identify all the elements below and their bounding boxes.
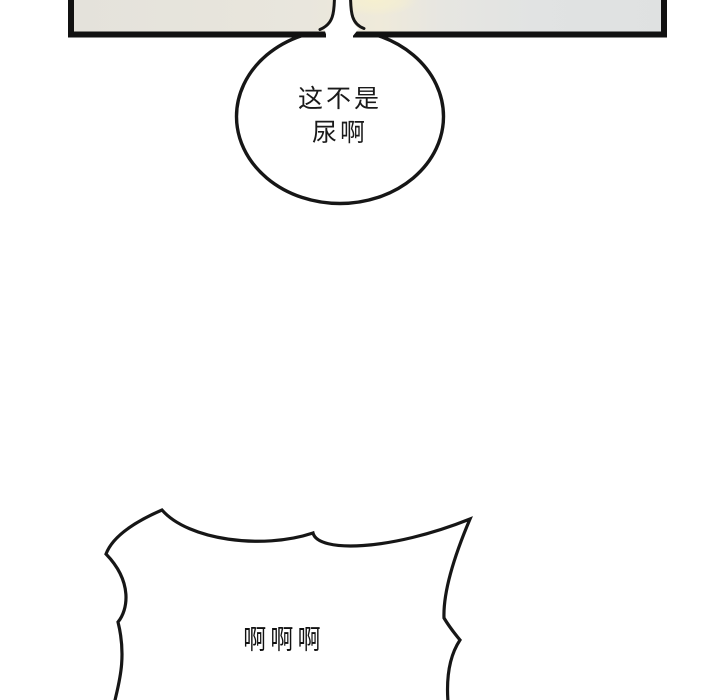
speech-bubble-text-line2: 尿啊: [240, 116, 440, 150]
comic-page: 这不是 尿啊 啊啊啊: [0, 0, 720, 700]
scream-bubble-text: 啊啊啊: [199, 626, 369, 654]
speech-bubble-text: 这不是 尿啊: [240, 82, 440, 150]
speech-bubble-text-line1: 这不是: [240, 82, 440, 116]
scream-bubble-outline: [106, 510, 470, 700]
